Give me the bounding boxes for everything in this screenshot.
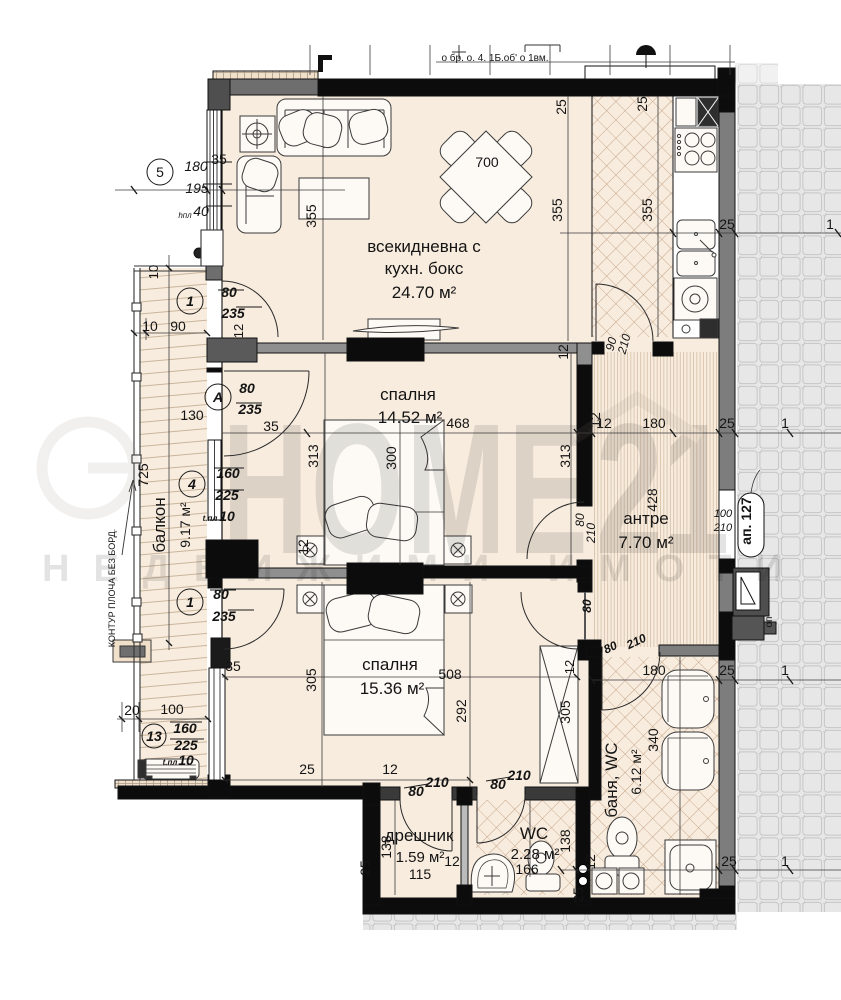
svg-text:305: 305 xyxy=(557,700,573,724)
svg-text:25: 25 xyxy=(719,662,735,678)
svg-text:355: 355 xyxy=(549,198,565,222)
svg-text:35: 35 xyxy=(225,658,241,674)
svg-text:25: 25 xyxy=(299,761,315,777)
svg-text:180: 180 xyxy=(642,662,666,678)
svg-text:12: 12 xyxy=(231,324,246,338)
svg-text:80: 80 xyxy=(580,599,594,613)
svg-text:24.70 м²: 24.70 м² xyxy=(392,283,457,302)
svg-text:15.36 м²: 15.36 м² xyxy=(360,679,425,698)
svg-text:балкон: балкон xyxy=(150,497,169,552)
svg-text:баня, WC: баня, WC xyxy=(602,742,621,817)
svg-text:12: 12 xyxy=(382,761,398,777)
svg-text:20: 20 xyxy=(124,702,140,718)
svg-text:12: 12 xyxy=(555,344,571,360)
svg-text:292: 292 xyxy=(453,699,469,723)
svg-text:90: 90 xyxy=(170,318,186,334)
svg-text:100: 100 xyxy=(160,701,184,717)
svg-text:355: 355 xyxy=(303,204,319,228)
svg-text:1: 1 xyxy=(781,853,789,869)
svg-text:180: 180 xyxy=(184,158,208,174)
svg-text:35: 35 xyxy=(211,151,227,167)
svg-text:25: 25 xyxy=(721,853,737,869)
svg-text:10: 10 xyxy=(146,265,161,279)
svg-text:12: 12 xyxy=(444,853,460,869)
svg-text:25: 25 xyxy=(634,96,650,112)
svg-text:10: 10 xyxy=(178,752,194,768)
svg-text:9.17 м²: 9.17 м² xyxy=(177,502,193,548)
svg-text:12: 12 xyxy=(582,854,598,870)
svg-text:80: 80 xyxy=(221,284,237,300)
svg-text:оп: оп xyxy=(764,617,775,628)
svg-text:дрешник: дрешник xyxy=(385,826,454,845)
svg-text:508: 508 xyxy=(438,666,462,682)
svg-text:25: 25 xyxy=(719,216,735,232)
svg-text:1: 1 xyxy=(781,415,789,431)
svg-text:НЕДВИЖИМИ ИМОТИ: НЕДВИЖИМИ ИМОТИ xyxy=(42,548,807,590)
svg-text:1: 1 xyxy=(186,293,194,309)
svg-text:4: 4 xyxy=(187,476,196,492)
svg-text:210: 210 xyxy=(424,774,449,790)
svg-text:305: 305 xyxy=(303,668,319,692)
svg-text:166: 166 xyxy=(515,861,539,877)
svg-text:о бр. о. 4. 1Б.об' о 1вм.: о бр. о. 4. 1Б.об' о 1вм. xyxy=(441,52,548,64)
svg-text:355: 355 xyxy=(639,198,655,222)
svg-text:40: 40 xyxy=(193,203,209,219)
svg-text:25: 25 xyxy=(357,860,373,876)
svg-text:t.пл: t.пл xyxy=(163,758,178,767)
svg-text:6.12 м²: 6.12 м² xyxy=(628,749,644,795)
svg-text:кухн. бокс: кухн. бокс xyxy=(385,259,464,278)
svg-text:спалня: спалня xyxy=(362,655,418,674)
svg-text:700: 700 xyxy=(475,154,499,170)
svg-text:25: 25 xyxy=(570,887,586,903)
svg-text:195: 195 xyxy=(185,180,209,196)
svg-text:ап. 127: ап. 127 xyxy=(738,497,754,545)
svg-text:5: 5 xyxy=(156,164,164,180)
svg-text:138: 138 xyxy=(557,829,573,853)
svg-text:25: 25 xyxy=(553,99,569,115)
svg-text:115: 115 xyxy=(409,866,432,882)
svg-text:340: 340 xyxy=(645,728,661,752)
svg-text:hпл: hпл xyxy=(178,211,192,220)
svg-text:13: 13 xyxy=(146,728,162,744)
svg-text:1: 1 xyxy=(826,216,834,232)
svg-text:12: 12 xyxy=(562,660,577,674)
svg-text:1: 1 xyxy=(186,594,194,610)
svg-text:t.пл: t.пл xyxy=(203,514,218,523)
svg-text:WC: WC xyxy=(520,824,548,843)
svg-text:1: 1 xyxy=(781,662,789,678)
svg-text:всекидневна с: всекидневна с xyxy=(367,237,481,256)
svg-text:10: 10 xyxy=(142,318,158,334)
svg-text:1.59 м²: 1.59 м² xyxy=(396,849,445,866)
svg-text:138: 138 xyxy=(378,835,394,859)
svg-text:130: 130 xyxy=(180,407,204,423)
svg-text:210: 210 xyxy=(506,767,531,783)
